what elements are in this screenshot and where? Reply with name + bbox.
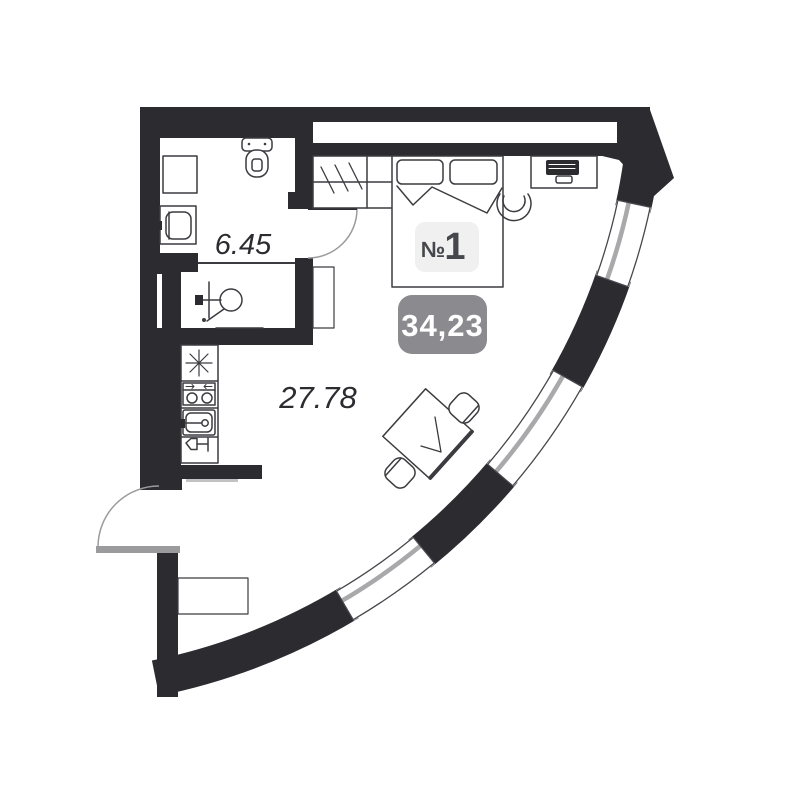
total-area-value: 34,23 bbox=[401, 308, 484, 343]
washing-machine bbox=[154, 206, 196, 244]
kitchen-sink-icon bbox=[179, 410, 215, 435]
pillow bbox=[397, 160, 443, 184]
wardrobe bbox=[313, 156, 395, 208]
faucet-icon bbox=[195, 295, 203, 305]
floor-plan: 6.45 27.78 № 1 34,23 bbox=[0, 0, 800, 800]
doorway-top-jamb bbox=[160, 479, 182, 490]
entrance-door-leaf bbox=[96, 546, 180, 553]
top-wall-channel bbox=[313, 122, 617, 143]
total-area-badge: 34,23 bbox=[398, 295, 487, 354]
faucet-icon bbox=[154, 221, 162, 230]
top-wall-left bbox=[140, 107, 313, 138]
bathroom-right-wall-upper bbox=[295, 107, 313, 209]
pillow bbox=[450, 160, 497, 184]
shoe-cabinet bbox=[178, 578, 248, 614]
curved-wall-segment bbox=[633, 162, 642, 210]
window-opening bbox=[612, 204, 634, 281]
top-wall-inner-band bbox=[295, 143, 627, 156]
unit-number-prefix: № bbox=[421, 237, 446, 262]
bathroom-door-jamb bbox=[288, 192, 295, 209]
toilet bbox=[242, 138, 272, 177]
faucet-icon bbox=[179, 419, 185, 428]
unit-number-value: 1 bbox=[444, 226, 465, 268]
storage-column bbox=[313, 267, 334, 328]
inner-left-wall bbox=[160, 253, 181, 480]
unit-number-badge: № 1 bbox=[415, 222, 479, 272]
desk bbox=[531, 156, 597, 188]
kitchen-bottom-wall bbox=[160, 465, 262, 479]
kitchen-threshold bbox=[186, 479, 238, 482]
bathroom-area-label: 6.45 bbox=[215, 229, 272, 261]
main-room-area-label: 27.78 bbox=[278, 380, 357, 415]
shower-bottom-wall bbox=[160, 328, 313, 345]
wall-shaft-gap bbox=[157, 274, 162, 328]
stove-icon bbox=[183, 383, 215, 405]
kitchen-unit bbox=[179, 345, 218, 463]
bathroom-cabinet bbox=[163, 156, 197, 193]
floor-plan-page: 6.45 27.78 № 1 34,23 bbox=[0, 0, 800, 800]
cooker-hood-icon bbox=[186, 350, 212, 376]
